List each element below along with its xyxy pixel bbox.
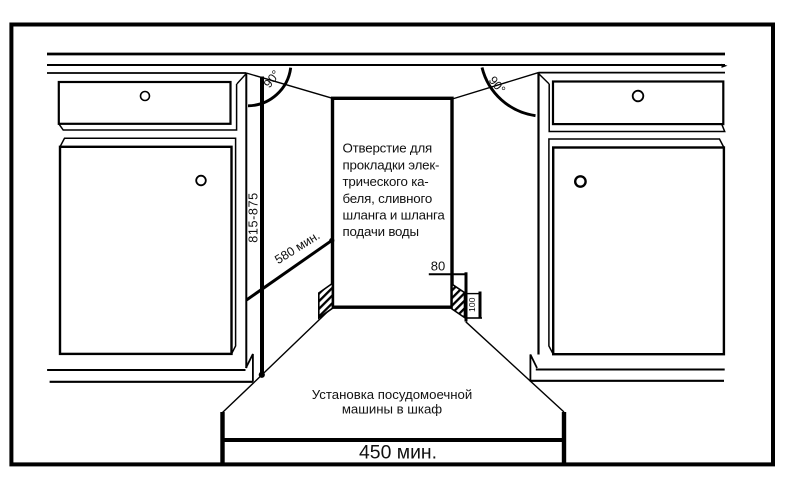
svg-text:815-875: 815-875 <box>247 192 261 242</box>
svg-text:машины в шкаф: машины в шкаф <box>342 402 442 417</box>
svg-text:100: 100 <box>467 297 477 312</box>
svg-text:80: 80 <box>431 258 445 273</box>
svg-text:450 мин.: 450 мин. <box>359 442 437 464</box>
svg-text:Установка посудомоечной: Установка посудомоечной <box>312 387 472 402</box>
